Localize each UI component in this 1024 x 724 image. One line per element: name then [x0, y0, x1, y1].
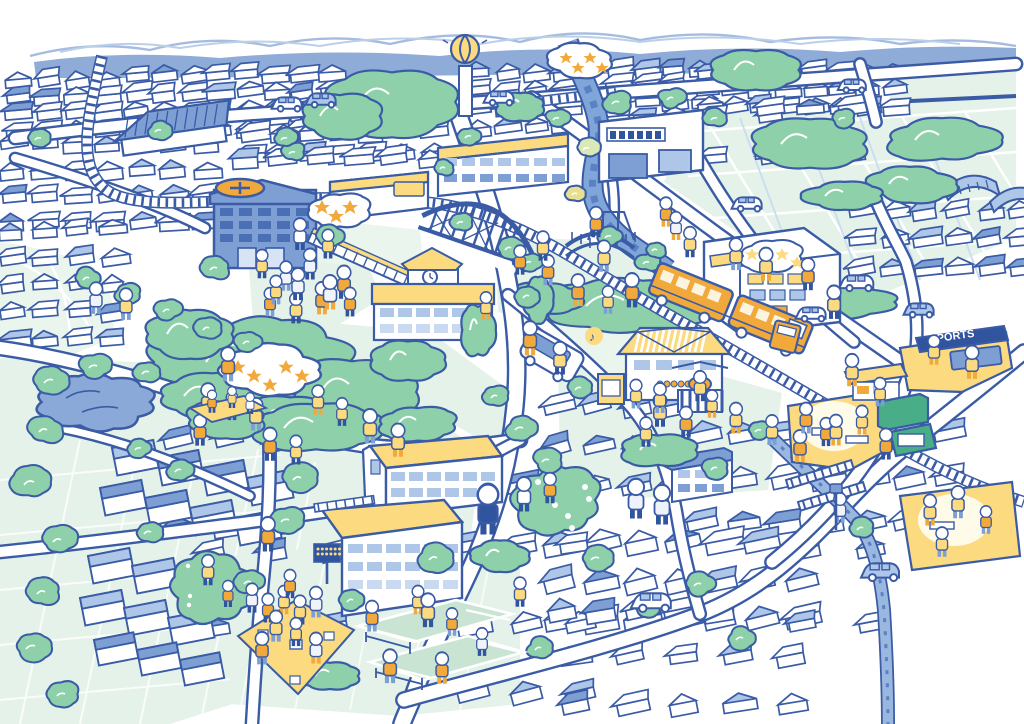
svg-text:♪: ♪: [589, 330, 595, 344]
